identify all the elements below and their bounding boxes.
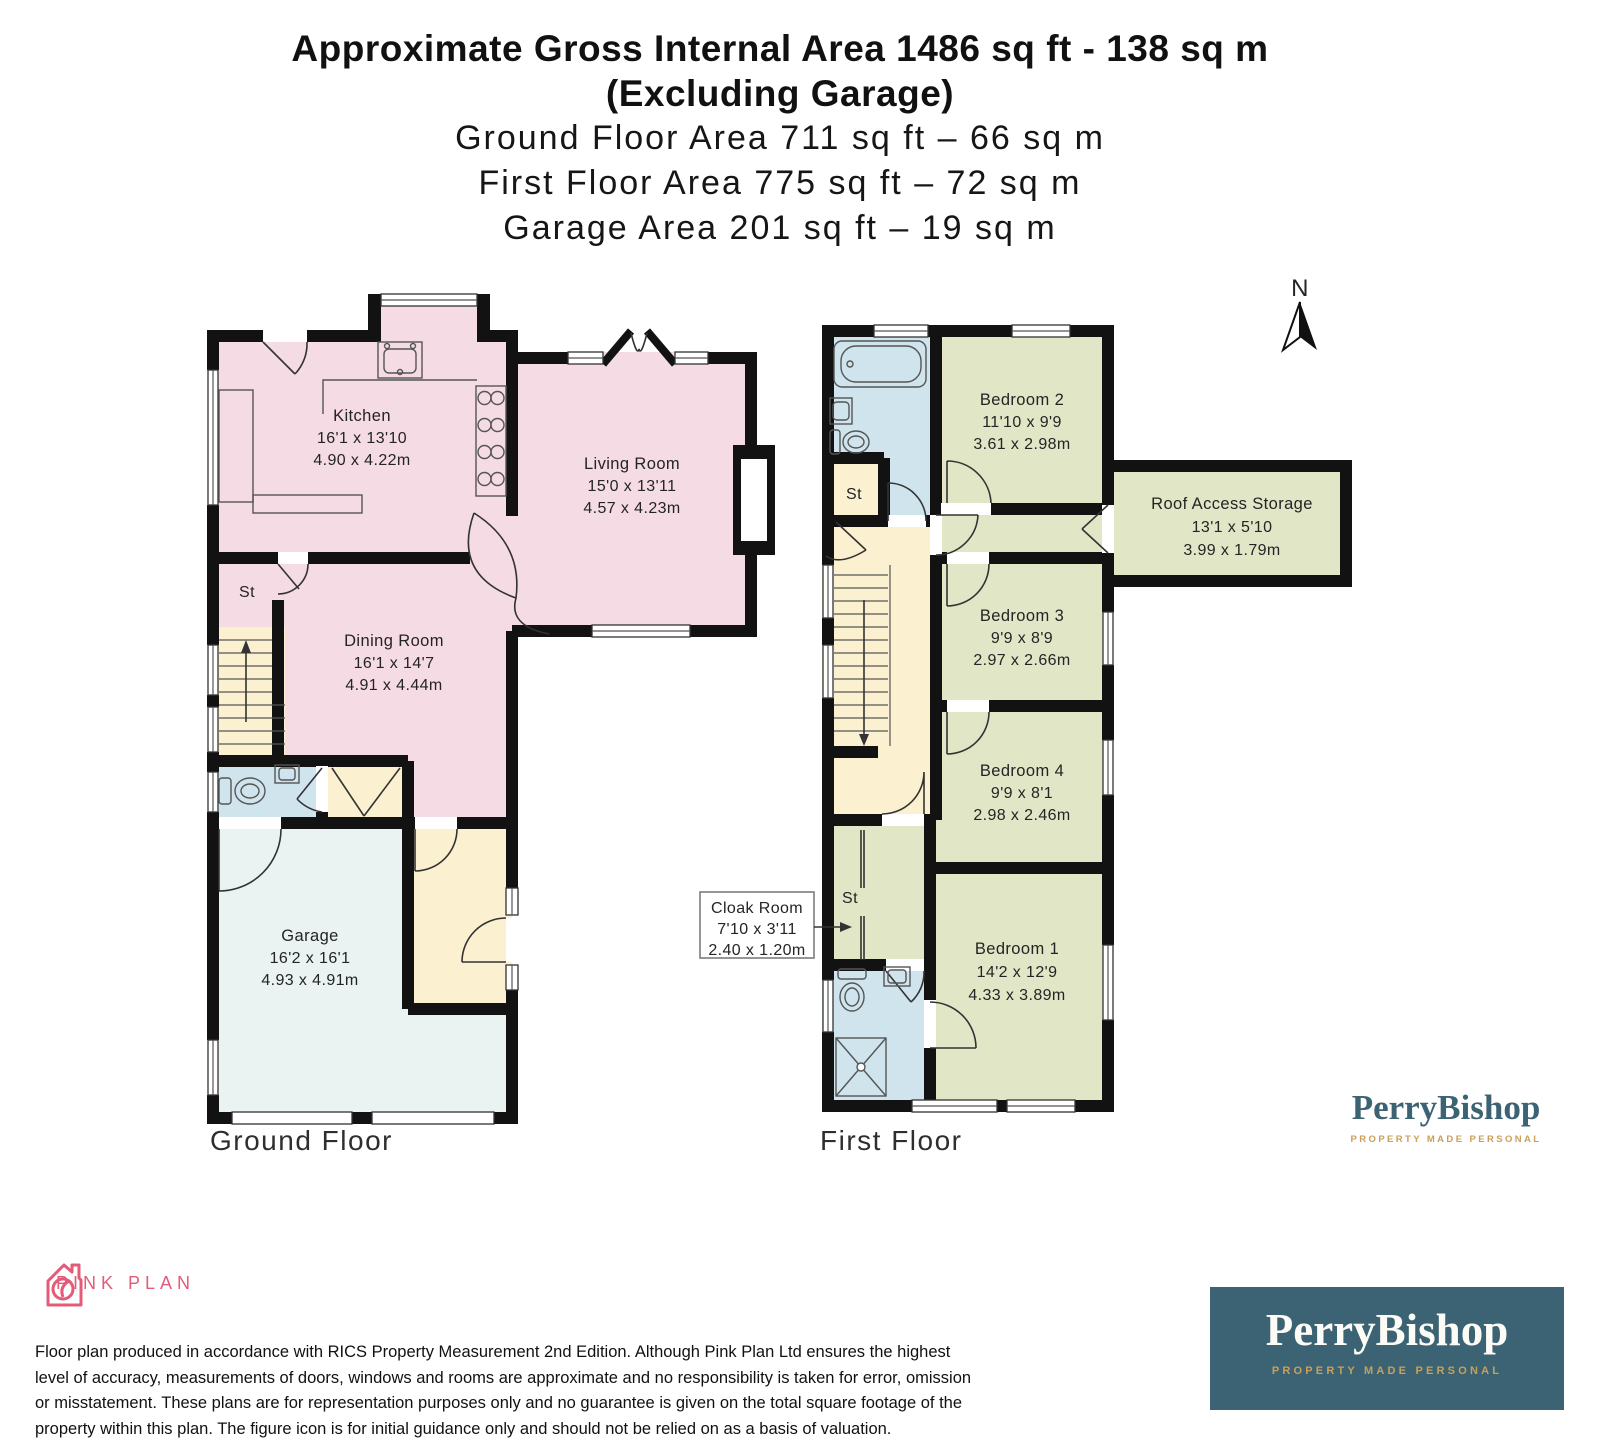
garage-dims-ft: 16'2 x 16'1 bbox=[270, 950, 351, 967]
pinkplan-logo: PINK PLAN bbox=[40, 1256, 195, 1310]
perrybishop-wordmark: PerryBishop bbox=[1340, 1088, 1552, 1128]
first-floor-plan: Cloak Room 7'10 x 3'11 2.40 x 1.20m N Be… bbox=[690, 270, 1380, 1170]
disclaimer-line-2: level of accuracy, measurements of doors… bbox=[35, 1366, 971, 1392]
perrybishop-box-tagline: PROPERTY MADE PERSONAL bbox=[1210, 1365, 1564, 1377]
living-room-dims-m: 4.57 x 4.23m bbox=[583, 500, 680, 517]
bay-pillar-left bbox=[368, 294, 381, 342]
bedroom2-dims-m: 3.61 x 2.98m bbox=[973, 436, 1070, 453]
garage-label: Garage bbox=[281, 927, 338, 945]
bedroom4-dims-m: 2.98 x 2.46m bbox=[973, 807, 1070, 824]
living-room-label: Living Room bbox=[584, 455, 680, 473]
first-floor-caption: First Floor bbox=[820, 1125, 963, 1156]
title-line-2: (Excluding Garage) bbox=[0, 71, 1560, 116]
kitchen-dims-m: 4.90 x 4.22m bbox=[313, 452, 410, 469]
dining-room-label: Dining Room bbox=[344, 632, 444, 650]
garage-dims-m: 4.93 x 4.91m bbox=[261, 972, 358, 989]
dining-room-dims-ft: 16'1 x 14'7 bbox=[354, 655, 435, 672]
disclaimer-line-1: Floor plan produced in accordance with R… bbox=[35, 1340, 971, 1366]
living-bay-cusp bbox=[631, 333, 647, 351]
kitchen-label: Kitchen bbox=[333, 407, 391, 425]
roof-access-storage-dims-m: 3.99 x 1.79m bbox=[1183, 542, 1280, 559]
kitchen-dims-ft: 16'1 x 13'10 bbox=[317, 430, 407, 447]
perrybishop-logo-box: PerryBishop PROPERTY MADE PERSONAL bbox=[1210, 1287, 1564, 1410]
north-label: N bbox=[1291, 275, 1309, 302]
room-hall bbox=[408, 823, 512, 1009]
ground-floor-caption: Ground Floor bbox=[210, 1125, 393, 1156]
north-arrow-icon: N bbox=[1283, 275, 1317, 350]
perrybishop-box-wordmark: PerryBishop bbox=[1210, 1304, 1564, 1356]
title-line-1: Approximate Gross Internal Area 1486 sq … bbox=[0, 26, 1560, 71]
cloak-room-dims-m: 2.40 x 1.20m bbox=[708, 942, 805, 959]
landing-area bbox=[822, 521, 936, 820]
bedroom3-label: Bedroom 3 bbox=[980, 607, 1064, 625]
storage-ground-label: St bbox=[239, 584, 255, 601]
bedroom2-dims-ft: 11'10 x 9'9 bbox=[982, 414, 1062, 431]
disclaimer-line-4: property within this plan. The figure ic… bbox=[35, 1417, 971, 1443]
storage-upper-label: St bbox=[846, 486, 862, 503]
living-room-dims-ft: 15'0 x 13'11 bbox=[588, 478, 677, 495]
disclaimer-text: Floor plan produced in accordance with R… bbox=[35, 1340, 971, 1442]
bay-pillar-right bbox=[477, 294, 490, 342]
title-line-5: Garage Area 201 sq ft – 19 sq m bbox=[0, 206, 1560, 251]
cloak-storage-area bbox=[822, 820, 930, 965]
perrybishop-tagline: PROPERTY MADE PERSONAL bbox=[1340, 1134, 1552, 1145]
bedroom3-dims-m: 2.97 x 2.66m bbox=[973, 652, 1070, 669]
storage-lower-label: St bbox=[842, 890, 858, 907]
title-block: Approximate Gross Internal Area 1486 sq … bbox=[0, 26, 1560, 251]
room-wc bbox=[213, 761, 328, 823]
bedroom1-label: Bedroom 1 bbox=[975, 940, 1059, 958]
bedroom2-label: Bedroom 2 bbox=[980, 391, 1064, 409]
room-kitchen bbox=[213, 336, 512, 562]
roof-access-storage-dims-ft: 13'1 x 5'10 bbox=[1192, 519, 1273, 536]
bedroom1-dims-m: 4.33 x 3.89m bbox=[968, 987, 1065, 1004]
title-line-3: Ground Floor Area 711 sq ft – 66 sq m bbox=[0, 116, 1560, 161]
cloak-room-dims-ft: 7'10 x 3'11 bbox=[717, 921, 797, 938]
roof-access-storage-label: Roof Access Storage bbox=[1151, 495, 1313, 513]
bedroom3-dims-ft: 9'9 x 8'9 bbox=[991, 630, 1053, 647]
title-line-4: First Floor Area 775 sq ft – 72 sq m bbox=[0, 161, 1560, 206]
bedroom4-label: Bedroom 4 bbox=[980, 762, 1064, 780]
pinkplan-house-icon bbox=[40, 1257, 88, 1309]
disclaimer-line-3: or misstatement. These plans are for rep… bbox=[35, 1391, 971, 1417]
bedroom4-dims-ft: 9'9 x 8'1 bbox=[991, 785, 1053, 802]
ras-corridor bbox=[936, 509, 1108, 558]
bedroom1-dims-ft: 14'2 x 12'9 bbox=[977, 964, 1058, 981]
floorplan-page: Approximate Gross Internal Area 1486 sq … bbox=[0, 0, 1600, 1451]
cloak-room-label: Cloak Room bbox=[711, 900, 803, 917]
dining-room-dims-m: 4.91 x 4.44m bbox=[345, 677, 442, 694]
perrybishop-logo-small: PerryBishop PROPERTY MADE PERSONAL bbox=[1340, 1088, 1552, 1145]
